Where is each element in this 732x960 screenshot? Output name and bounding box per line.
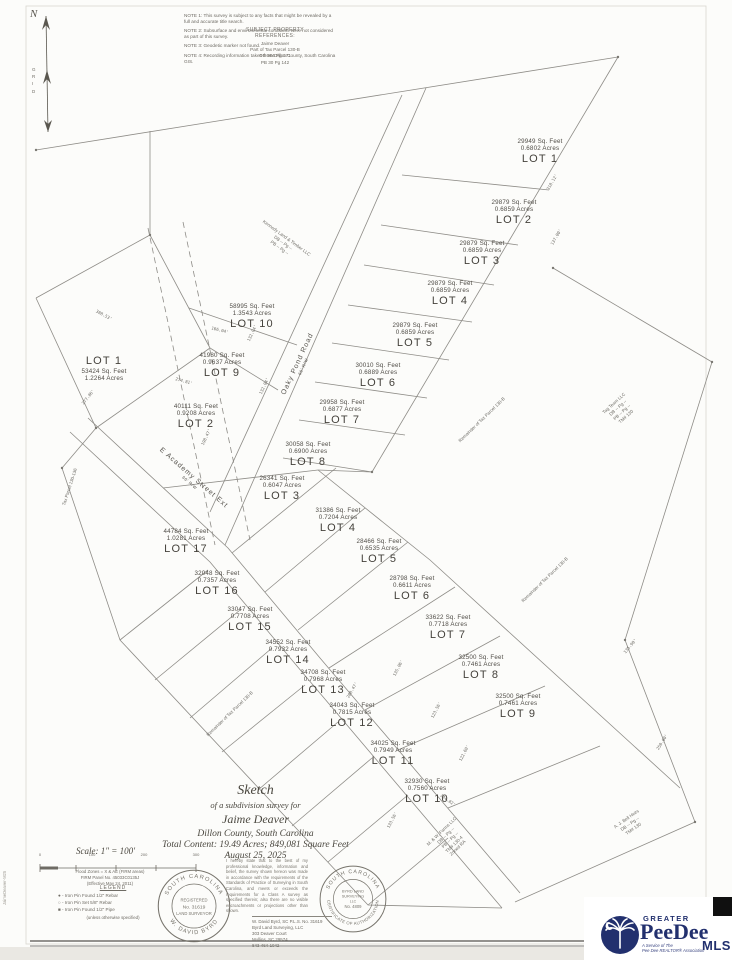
lot-sqft: 41980 Sq. Feet (199, 352, 244, 359)
legend-item: ■ - Iron Pin Found 1/2" Pipe (58, 907, 168, 914)
lot-acres: 0.7461 Acres (495, 700, 540, 707)
lot-acres: 0.6802 Acres (517, 145, 562, 152)
lot-label: 33047 Sq. Feet0.7708 AcresLOT 15 (227, 606, 272, 634)
lot-acres: 0.7560 Acres (404, 785, 449, 792)
lot-sqft: 40111 Sq. Feet (174, 403, 218, 410)
lot-label: 41980 Sq. Feet0.9637 AcresLOT 9 (199, 352, 244, 380)
lot-sqft: 33622 Sq. Feet (425, 614, 470, 621)
lot-number: LOT 16 (194, 585, 239, 598)
lot-label: 34708 Sq. Feet0.7968 AcresLOT 13 (300, 669, 345, 697)
lot-acres: 0.7708 Acres (227, 613, 272, 620)
lot-label: 32500 Sq. Feet0.7461 AcresLOT 8 (458, 654, 503, 682)
lot-sqft: 34708 Sq. Feet (300, 669, 345, 676)
dimension-label: 288.47' (345, 681, 358, 699)
adjoiner-line: Remainder of Tax Parcel 130-B (458, 396, 507, 444)
mls-peedee-text: PeeDee (640, 919, 708, 945)
lot-acres: 0.7357 Acres (194, 577, 239, 584)
lot-number: LOT 17 (163, 543, 208, 556)
seal2-line3: LLC (350, 900, 357, 904)
dimension-label: 274.81' (175, 376, 193, 385)
lot-label: 29879 Sq. Feet0.6859 AcresLOT 4 (427, 280, 472, 308)
lot-acres: 0.7968 Acres (300, 676, 345, 683)
scale-bar-label: 200 (141, 852, 148, 857)
lot-sqft: 32930 Sq. Feet (404, 778, 449, 785)
road-name: E Academy Street Ext (158, 447, 229, 510)
lot-label: 29879 Sq. Feet0.6859 AcresLOT 3 (459, 240, 504, 268)
lot-acres: 0.6900 Acres (285, 448, 330, 455)
seal1-arc-bottom: W. DAVID BYRD (168, 918, 219, 936)
lot-acres: 0.6859 Acres (392, 329, 437, 336)
lot-number: LOT 5 (356, 553, 401, 566)
lot-acres: 0.6535 Acres (356, 545, 401, 552)
legend-item: ○ - Iron Pin Set 5/8" Rebar (58, 900, 168, 907)
lot-label: 29958 Sq. Feet0.6877 AcresLOT 7 (319, 399, 364, 427)
lot-sqft: 44784 Sq. Feet (163, 528, 208, 535)
adjoiner-note: Kennedy Land & Timber LLCDB -- Pg --PB -… (254, 219, 311, 267)
lot-label: 34025 Sq. Feet0.7949 AcresLOT 11 (370, 740, 415, 768)
lot-sqft: 28798 Sq. Feet (389, 575, 434, 582)
adjoiner-note: A. J. Bell HeirsDB -- Pg --TM# 130 (613, 808, 647, 839)
lot-sqft: 29949 Sq. Feet (517, 138, 562, 145)
lot-sqft: 32500 Sq. Feet (458, 654, 503, 661)
legend: LEGEND ● - Iron Pin Found 1/2" Rebar○ - … (58, 885, 168, 920)
adjoiner-note: Remainder of Tax Parcel 130-B (521, 556, 570, 604)
lot-label: 31386 Sq. Feet0.7204 AcresLOT 4 (315, 507, 360, 535)
seal2-line2: SURVEYING (342, 895, 365, 899)
seal1-surveyor: LAND SURVEYOR (176, 911, 212, 916)
lot-sqft: 53424 Sq. Feet (81, 368, 126, 375)
legend-note: (unless otherwise specified) (58, 915, 168, 920)
lot-label: 29879 Sq. Feet0.6859 AcresLOT 2 (491, 199, 536, 227)
dimension-label: 166.04' (211, 325, 229, 334)
lot-acres: 0.6611 Acres (389, 582, 434, 589)
title-subtitle: of a subdivision survey for (118, 800, 393, 810)
lot-label: 40111 Sq. Feet0.9208 AcresLOT 2 (174, 403, 218, 431)
seal2-line1: BYRD LAND (342, 890, 364, 894)
legend-items: ● - Iron Pin Found 1/2" Rebar○ - Iron Pi… (58, 893, 168, 914)
lot-number: LOT 8 (458, 669, 503, 682)
dimension-label: 135.06' (392, 659, 404, 677)
lot-number: LOT 9 (495, 708, 540, 721)
lot-acres: 0.7815 Acres (329, 709, 374, 716)
adjoiner-note: M. & W. Farms LLCDB -- Pg --PB -- Pg --T… (426, 816, 475, 864)
legend-item: ● - Iron Pin Found 1/2" Rebar (58, 893, 168, 900)
road-name-label: E Academy Street Ext66' R/W (155, 447, 229, 514)
lot-acres: 1.2264 Acres (81, 375, 126, 382)
dimension-label: 250.00' (655, 733, 669, 751)
lot-number: LOT 15 (227, 621, 272, 634)
lot-label: 32930 Sq. Feet0.7560 AcresLOT 10 (404, 778, 449, 806)
lot-sqft: 31386 Sq. Feet (315, 507, 360, 514)
lot-sqft: 28466 Sq. Feet (356, 538, 401, 545)
lot-acres: 0.9208 Acres (174, 410, 218, 417)
lot-label: 30058 Sq. Feet0.6900 AcresLOT 8 (285, 441, 330, 469)
road-name-label: Oaky Pond Road66' R/W (280, 332, 319, 398)
lot-acres: 0.6859 Acres (491, 206, 536, 213)
file-watermark: JaimeDeaver-M25 (2, 871, 7, 905)
dimension-label: 135.90' (622, 638, 637, 655)
lot-number: LOT 8 (285, 456, 330, 469)
certification-statement: I hereby state that to the best of my pr… (226, 858, 308, 914)
lot-acres: 0.6859 Acres (459, 247, 504, 254)
seal1-registered: REGISTERED (180, 897, 207, 902)
dimension-label: 122.60' (458, 744, 470, 762)
lot-label: 29879 Sq. Feet0.6859 AcresLOT 5 (392, 322, 437, 350)
lot-sqft: 34043 Sq. Feet (329, 702, 374, 709)
lot-sqft: 29879 Sq. Feet (491, 199, 536, 206)
flood-note: Flood Zones = X & AE (FIRM areas)FIRM Pa… (50, 869, 170, 886)
survey-plat-page: N GRID NOTE 1: This survey is subject to… (0, 0, 732, 960)
lot-acres: 1.0281 Acres (163, 535, 208, 542)
title-total-content: Total Content: 19.49 Acres; 849,081 Squa… (118, 840, 393, 850)
mls-mls-text: MLS (702, 938, 731, 953)
lot-number: LOT 4 (315, 522, 360, 535)
lot-number: LOT 7 (319, 414, 364, 427)
lot-acres: 0.6889 Acres (355, 369, 400, 376)
lot-sqft: 29879 Sq. Feet (427, 280, 472, 287)
lot-sqft: 32048 Sq. Feet (194, 570, 239, 577)
mls-logo-block: GREATER PeeDee MLS A Service of The Pee … (584, 897, 732, 960)
lot-acres: 0.7949 Acres (370, 747, 415, 754)
dimension-label: 123.56' (430, 701, 442, 719)
lot-sqft: 30010 Sq. Feet (355, 362, 400, 369)
road-name: Oaky Pond Road (280, 332, 315, 396)
lot-number: LOT 6 (389, 590, 434, 603)
lot-sqft: 30058 Sq. Feet (285, 441, 330, 448)
scale-bar-label: 100 (89, 852, 96, 857)
lot-label: 28798 Sq. Feet0.6611 AcresLOT 6 (389, 575, 434, 603)
lot-acres: 0.6047 Acres (259, 482, 304, 489)
lot-number: LOT 5 (392, 337, 437, 350)
lot-acres: 1.3543 Acres (229, 310, 274, 317)
adjoiner-line: Remainder of Tax Parcel 130-B (521, 556, 570, 604)
adjoiner-note: Tag Team LLCDB -- Pg --PB -- Pg --TM# 13… (601, 392, 638, 429)
seal2-number: No. 4809 (345, 904, 363, 909)
lot-sqft: 58995 Sq. Feet (229, 303, 274, 310)
scale-bar-label: 300 (193, 852, 200, 857)
dimension-label: 132.04' (258, 377, 270, 395)
lot-label: 26341 Sq. Feet0.6047 AcresLOT 3 (259, 475, 304, 503)
lot-sqft: 33047 Sq. Feet (227, 606, 272, 613)
lot-label: 28466 Sq. Feet0.6535 AcresLOT 5 (356, 538, 401, 566)
lot-label: 44784 Sq. Feet1.0281 AcresLOT 17 (163, 528, 208, 556)
lot-number: LOT 11 (370, 755, 415, 768)
road-right-of-way: 66' R/W (155, 452, 225, 514)
mls-tagline: A Service of The Pee Dee REALTOR® Associ… (642, 943, 704, 954)
adjoiner-note: Remainder of Tax Parcel 130-B (206, 690, 255, 738)
lot-label: 32500 Sq. Feet0.7461 AcresLOT 9 (495, 693, 540, 721)
lot-label: 32048 Sq. Feet0.7357 AcresLOT 16 (194, 570, 239, 598)
lot-acres: 0.6859 Acres (427, 287, 472, 294)
lot-number: LOT 3 (259, 490, 304, 503)
lot-label: 30010 Sq. Feet0.6889 AcresLOT 6 (355, 362, 400, 390)
lot-number: LOT 9 (199, 367, 244, 380)
adjoiner-note: Tax Parcel 130-136 (61, 468, 79, 507)
lot-sqft: 26341 Sq. Feet (259, 475, 304, 482)
adjoiner-note: Remainder of Tax Parcel 130-B (458, 396, 507, 444)
scale-bar-label-row: 0100200300 (36, 852, 236, 860)
lot-acres: 0.7932 Acres (265, 646, 310, 653)
mls-tagline-2: Pee Dee REALTOR® Association (642, 948, 704, 953)
lot-number: LOT 13 (300, 684, 345, 697)
lot-number: LOT 12 (329, 717, 374, 730)
lot-acres: 0.6877 Acres (319, 406, 364, 413)
lot-acres: 0.7461 Acres (458, 661, 503, 668)
lot-number: LOT 1 (517, 153, 562, 166)
scale-bar-label: 0 (39, 852, 41, 857)
title-owner-name: Jaime Deaver (118, 812, 393, 827)
corner-square (713, 897, 732, 916)
lot-acres: 0.7718 Acres (425, 621, 470, 628)
surveyor-seal: SOUTH CAROLINA W. DAVID BYRD REGISTERED … (156, 868, 232, 944)
title-sketch: Sketch (118, 783, 393, 799)
seal1-number: No. 31619 (183, 904, 206, 910)
dimension-label: 277.86' (81, 389, 96, 406)
lot-number: LOT 7 (425, 629, 470, 642)
lot-label: 34552 Sq. Feet0.7932 AcresLOT 14 (265, 639, 310, 667)
lot-label: LOT 153424 Sq. Feet1.2264 Acres (81, 354, 126, 382)
lot-label: 34043 Sq. Feet0.7815 AcresLOT 12 (329, 702, 374, 730)
lot-number: LOT 2 (491, 214, 536, 227)
adjoiner-line: Remainder of Tax Parcel 130-B (206, 690, 255, 738)
dimension-label: 388.53' (95, 309, 113, 322)
adjoiner-line: DB -- Pg -- (258, 224, 308, 263)
lot-number: LOT 1 (81, 355, 126, 368)
lot-number: LOT 14 (265, 654, 310, 667)
svg-text:W. DAVID BYRD: W. DAVID BYRD (168, 918, 219, 936)
lot-sqft: 29879 Sq. Feet (459, 240, 504, 247)
lot-sqft: 29958 Sq. Feet (319, 399, 364, 406)
lot-acres: 0.9637 Acres (199, 359, 244, 366)
lot-acres: 0.7204 Acres (315, 514, 360, 521)
adjoiner-line: Tax Parcel 130-136 (61, 468, 79, 507)
lot-number: LOT 3 (459, 255, 504, 268)
surveyor-info-block: W. David Byrd, SC P.L.S. No. 31619Byrd L… (252, 916, 332, 949)
lot-sqft: 32500 Sq. Feet (495, 693, 540, 700)
lot-label: 33622 Sq. Feet0.7718 AcresLOT 7 (425, 614, 470, 642)
lot-sqft: 34552 Sq. Feet (265, 639, 310, 646)
dimension-label: 318.12' (545, 173, 558, 191)
title-block: Sketch of a subdivision survey for Jaime… (118, 783, 393, 861)
lot-sqft: 34025 Sq. Feet (370, 740, 415, 747)
palmetto-icon (600, 915, 640, 955)
lot-number: LOT 6 (355, 377, 400, 390)
legend-title: LEGEND (58, 885, 168, 891)
lot-sqft: 29879 Sq. Feet (392, 322, 437, 329)
title-county: Dillon County, South Carolina (118, 829, 393, 839)
dimension-label: 137.00' (549, 228, 562, 246)
lot-number: LOT 4 (427, 295, 472, 308)
lot-label: 29949 Sq. Feet0.6802 AcresLOT 1 (517, 138, 562, 166)
